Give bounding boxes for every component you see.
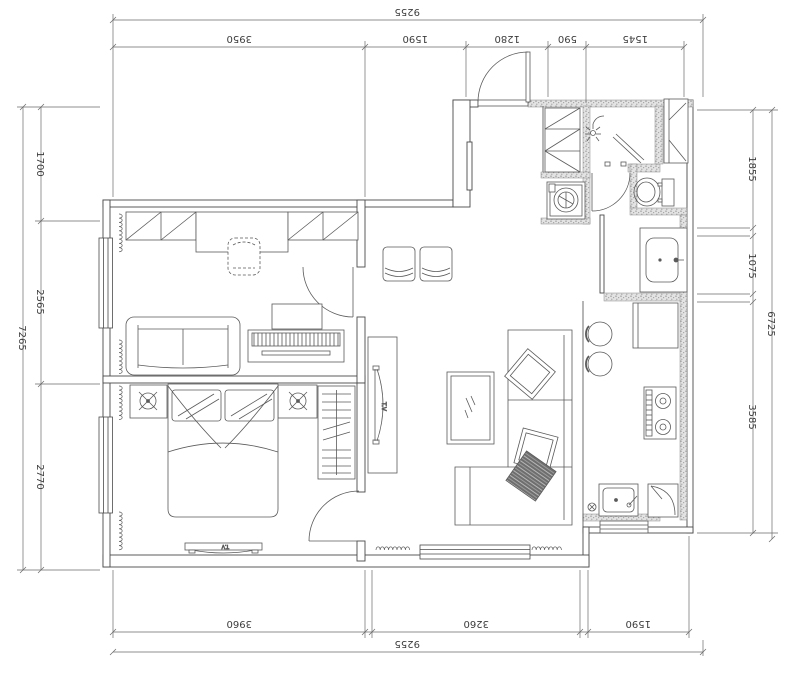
entry-chair-1 (383, 247, 415, 281)
dim-label: 3960 (227, 618, 252, 629)
balcony-steps (600, 521, 648, 533)
dim-top-labels: 9255 3950 1590 1280 590 1545 (227, 6, 648, 44)
bedroom: T.V (130, 384, 355, 553)
shoe-cabinet (545, 108, 580, 172)
piano (248, 330, 344, 362)
dim-label: 1075 (746, 253, 757, 278)
living-room: T.V (368, 247, 572, 525)
tv-label-bedroom: T.V (221, 543, 230, 549)
wardrobe (318, 386, 355, 479)
cabinet-right (288, 212, 358, 240)
dim-label: 1700 (34, 151, 45, 176)
tv-label-living: T.V (380, 401, 387, 412)
study-room (126, 212, 358, 375)
dim-label: 3585 (746, 404, 757, 429)
dim-label: 590 (558, 33, 577, 44)
dim-bottom (110, 536, 706, 656)
dim-label: 1590 (626, 618, 651, 629)
bathroom-door (592, 173, 630, 211)
entry-door (478, 52, 530, 106)
desk-chair (228, 238, 260, 275)
dim-label: 7265 (16, 325, 27, 350)
double-bed (168, 384, 278, 517)
dim-label: 2565 (34, 289, 45, 314)
window-study-left (99, 238, 113, 328)
entry-chair-2 (420, 247, 452, 281)
dim-label: 6725 (765, 311, 776, 336)
kitchen-sink (599, 484, 638, 516)
curtain-icon (119, 386, 122, 420)
bar-stool-2 (586, 352, 612, 376)
vanity-sink (640, 228, 687, 292)
toilet (634, 178, 674, 206)
floor-plan-drawing: T.V T.V (0, 0, 800, 674)
coffee-table (447, 372, 494, 444)
dim-label: 3950 (227, 33, 252, 44)
bathroom (545, 99, 688, 292)
dim-label: 2770 (34, 464, 45, 489)
dim-right-labels: 1855 1075 3585 6725 (746, 156, 776, 429)
shower-area (585, 116, 644, 166)
cabinet-left (126, 212, 196, 240)
floor-drain-icon (588, 503, 596, 511)
curtain-icon (376, 547, 410, 550)
fridge-cabinet (633, 303, 678, 348)
curtain-icon (532, 547, 561, 550)
dim-bottom-labels: 3960 3260 1590 9255 (227, 618, 651, 649)
dim-label: 3260 (464, 618, 489, 629)
piano-bench (272, 304, 322, 329)
curtain-icon (119, 340, 122, 374)
dim-label: 1855 (746, 156, 757, 181)
window-bedroom-left (99, 417, 113, 513)
bedroom-door (309, 491, 359, 541)
floor-plan-page: T.V T.V (0, 0, 800, 674)
mirror-cabinet (664, 99, 688, 163)
dim-left (17, 104, 100, 573)
window-living-bottom (420, 545, 530, 559)
dim-label: 1590 (403, 33, 428, 44)
shower-glass-door (605, 134, 644, 166)
sofa-study (126, 317, 240, 375)
dim-label: 9255 (395, 638, 420, 649)
bar-stool-1 (586, 322, 612, 346)
dim-label: 9255 (395, 6, 420, 17)
curtain-icon (119, 512, 122, 550)
stove (644, 387, 676, 439)
curtain-icon (119, 214, 122, 252)
kitchen (586, 303, 678, 533)
corner-cabinet (648, 484, 678, 517)
dim-label: 1545 (623, 33, 648, 44)
dim-label: 1280 (495, 33, 520, 44)
washing-machine (547, 182, 585, 219)
